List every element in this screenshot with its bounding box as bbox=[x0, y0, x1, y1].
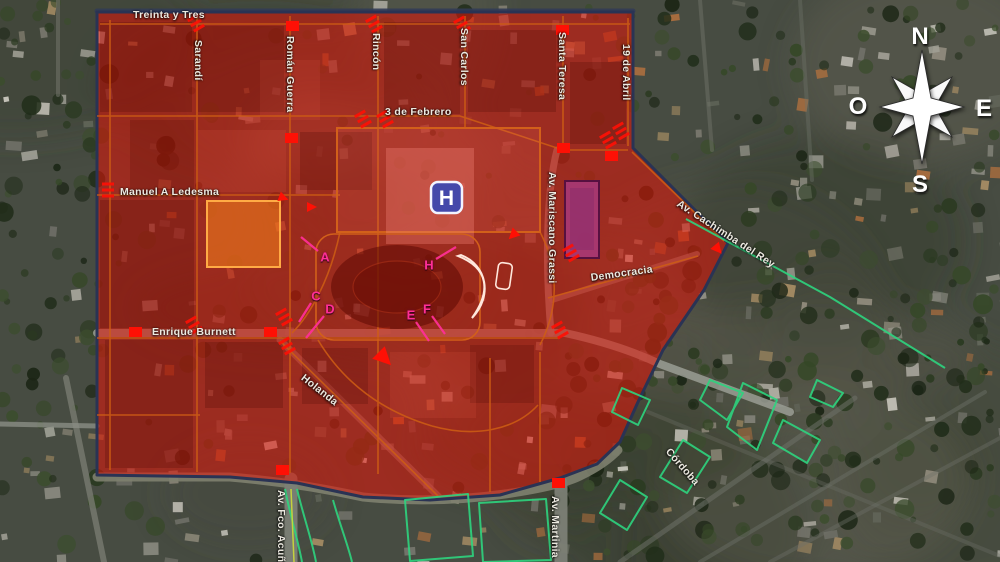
street-label-enrique-burnett: Enrique Burnett bbox=[152, 326, 236, 338]
street-label-manuel-a-ledesma: Manuel A Ledesma bbox=[120, 186, 219, 198]
compass-west-label: O bbox=[849, 93, 868, 120]
street-label-av-fco-acuna: Av. Fco. Acuña bbox=[275, 490, 287, 562]
street-label-3-de-febrero: 3 de Febrero bbox=[385, 106, 452, 118]
zone-marker-f: F bbox=[423, 302, 431, 317]
street-label-santa-teresa: Santa Teresa bbox=[556, 32, 568, 100]
street-label-av-martinia: Av. Martinia bbox=[549, 496, 561, 558]
map-canvas[interactable]: H N E S O bbox=[0, 0, 1000, 562]
compass-south-label: S bbox=[912, 171, 928, 198]
compass-north-label: N bbox=[911, 23, 928, 50]
zone-marker-d: D bbox=[325, 302, 334, 317]
street-label-treinta-y-tres: Treinta y Tres bbox=[133, 9, 205, 21]
orange-highlight-block bbox=[207, 201, 280, 267]
zone-marker-e: E bbox=[407, 308, 416, 323]
street-label-roman-guerra: Román Guerra bbox=[284, 36, 296, 113]
street-label-19-de-abril: 19 de Abril bbox=[620, 44, 632, 101]
street-label-sarandi: Sarandí bbox=[192, 40, 204, 81]
zone-marker-a: A bbox=[320, 250, 329, 265]
helipad: H bbox=[431, 182, 462, 213]
map-svg: H N E S O bbox=[0, 0, 1000, 562]
compass-east-label: E bbox=[976, 95, 992, 122]
street-label-san-carlos: San Carlos bbox=[458, 28, 470, 86]
zone-marker-c: C bbox=[311, 289, 320, 304]
zone-marker-h: H bbox=[424, 258, 433, 273]
helipad-letter: H bbox=[439, 187, 454, 210]
street-label-av-mariscano-grassi: Av. Mariscano Grassi bbox=[546, 172, 558, 284]
street-label-rincon: Rincón bbox=[370, 33, 382, 70]
